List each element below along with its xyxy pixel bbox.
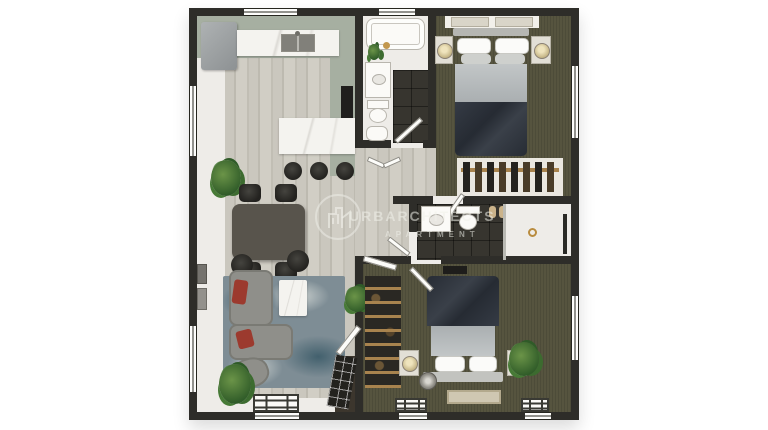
- peninsula-counter: [279, 118, 355, 154]
- bed2-blanket: [431, 326, 495, 356]
- bed1-duvet: [455, 102, 527, 156]
- bedroom2-plant: [509, 342, 539, 376]
- living-window-bottom: [255, 412, 299, 420]
- coffee-table: [279, 280, 307, 316]
- bedroom2-tv-console: [443, 266, 467, 274]
- toilet1-bowl: [369, 108, 387, 123]
- living-window-glyph: [253, 394, 299, 412]
- bed1-headboard: [453, 28, 529, 36]
- bed1-cushion-left: [461, 54, 491, 64]
- floor-plan: URBARCHITECTS APARTMENT: [189, 8, 579, 420]
- living-window-left-top: [189, 86, 197, 156]
- bar-stool-3: [336, 162, 354, 180]
- wall-bedroom1-bottom-a: [393, 196, 433, 204]
- wall-bath1-bottom-a: [355, 140, 391, 148]
- living-window-left-bottom: [189, 326, 197, 392]
- bed1-pillow-left: [457, 38, 491, 54]
- shower-glass: [503, 204, 506, 260]
- bedroom1-art-2: [495, 17, 533, 27]
- wall-art-living-2: [197, 288, 207, 310]
- bed2-pillow-right: [469, 356, 497, 372]
- bed2-pillow-left: [435, 356, 465, 372]
- bar-stool-1: [284, 162, 302, 180]
- bedroom2-window-bottom-right: [525, 412, 551, 420]
- dining-chair-2: [275, 184, 297, 202]
- kitchen-window: [244, 8, 297, 16]
- living-plant: [219, 364, 251, 404]
- bathroom1-plant: [368, 44, 380, 60]
- kitchen-faucet: [295, 31, 300, 36]
- dining-chair-1: [239, 184, 261, 202]
- bathroom1-window: [379, 8, 415, 16]
- wall-bedroom2-top-b: [441, 256, 571, 264]
- page: { "title": "apartment-floor-plan-render"…: [0, 0, 768, 430]
- closet1-clothes: [463, 162, 559, 192]
- floor-fan: [419, 372, 437, 390]
- bathroom1-gold-accent: [383, 42, 390, 49]
- bed1-lamp-right: [534, 43, 550, 59]
- bed1-blanket: [455, 64, 527, 102]
- watermark-line1: URBARCHITECTS: [349, 208, 499, 224]
- bedroom2-window-glyph-right: [521, 398, 549, 412]
- bathroom1-small-basin: [366, 126, 388, 141]
- shower-floor: [505, 204, 571, 260]
- bathroom1-basin: [372, 74, 386, 85]
- wall-art-living-1: [197, 264, 207, 284]
- wall-bedroom1-bottom-b: [463, 196, 571, 204]
- kitchen-sink: [281, 34, 315, 52]
- bedroom2-window-glyph-left: [395, 398, 427, 412]
- closet2-shelving: [365, 276, 401, 388]
- bed2-duvet: [427, 276, 499, 326]
- bed1-pillow-right: [495, 38, 529, 54]
- dining-plant: [211, 160, 241, 196]
- wall-bath1-bottom-b: [423, 140, 436, 148]
- hallway-floor-a: [355, 148, 436, 196]
- shower-drain: [528, 228, 537, 237]
- bedroom2-window-bottom-left: [399, 412, 427, 420]
- bedroom1-window-right: [571, 66, 579, 138]
- refrigerator: [201, 22, 237, 70]
- towel-bar: [563, 214, 567, 254]
- wall-kitchen-bath1: [355, 16, 363, 148]
- bedroom2-rug: [447, 390, 501, 404]
- bed1-lamp-left: [437, 43, 453, 59]
- wall-bottom: [189, 412, 579, 420]
- bedroom1-art-1: [451, 17, 489, 27]
- ottoman-2: [287, 250, 309, 272]
- watermark-line2: APARTMENT: [385, 230, 495, 239]
- bedroom2-window-right: [571, 296, 579, 360]
- bed2-lamp-left: [402, 356, 418, 372]
- bed1-cushion-right: [495, 54, 525, 64]
- bar-stool-2: [310, 162, 328, 180]
